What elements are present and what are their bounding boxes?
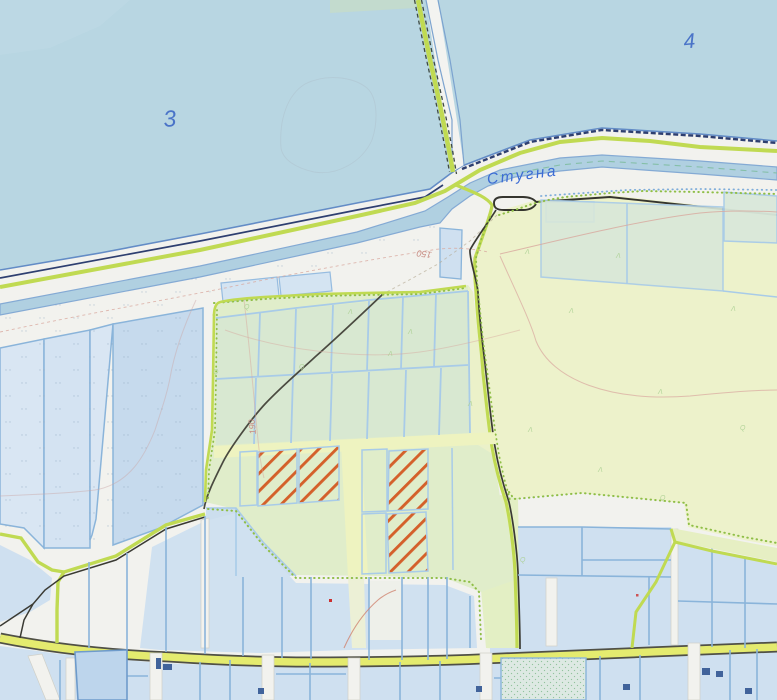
svg-text:Λ: Λ — [730, 306, 736, 313]
svg-text:Λ: Λ — [615, 253, 621, 260]
svg-text:4: 4 — [682, 30, 696, 54]
svg-text:Λ: Λ — [387, 351, 393, 358]
svg-text:Λ: Λ — [467, 401, 473, 408]
svg-text:Λ: Λ — [597, 467, 603, 474]
svg-text:Q: Q — [213, 369, 219, 376]
svg-text:150: 150 — [416, 248, 432, 260]
svg-text:Λ: Λ — [568, 308, 574, 315]
svg-text:Λ: Λ — [347, 309, 353, 316]
svg-text:Q: Q — [299, 364, 305, 371]
svg-text:Λ: Λ — [524, 249, 530, 256]
svg-text:Q: Q — [244, 304, 250, 311]
svg-text:Q: Q — [740, 425, 746, 432]
svg-text:Q: Q — [660, 495, 666, 502]
svg-text:190: 190 — [246, 419, 258, 435]
svg-text:3: 3 — [162, 105, 177, 132]
svg-text:Λ: Λ — [527, 427, 533, 434]
svg-text:Λ: Λ — [407, 329, 413, 336]
svg-text:Q: Q — [520, 557, 526, 564]
svg-text:Λ: Λ — [657, 389, 663, 396]
